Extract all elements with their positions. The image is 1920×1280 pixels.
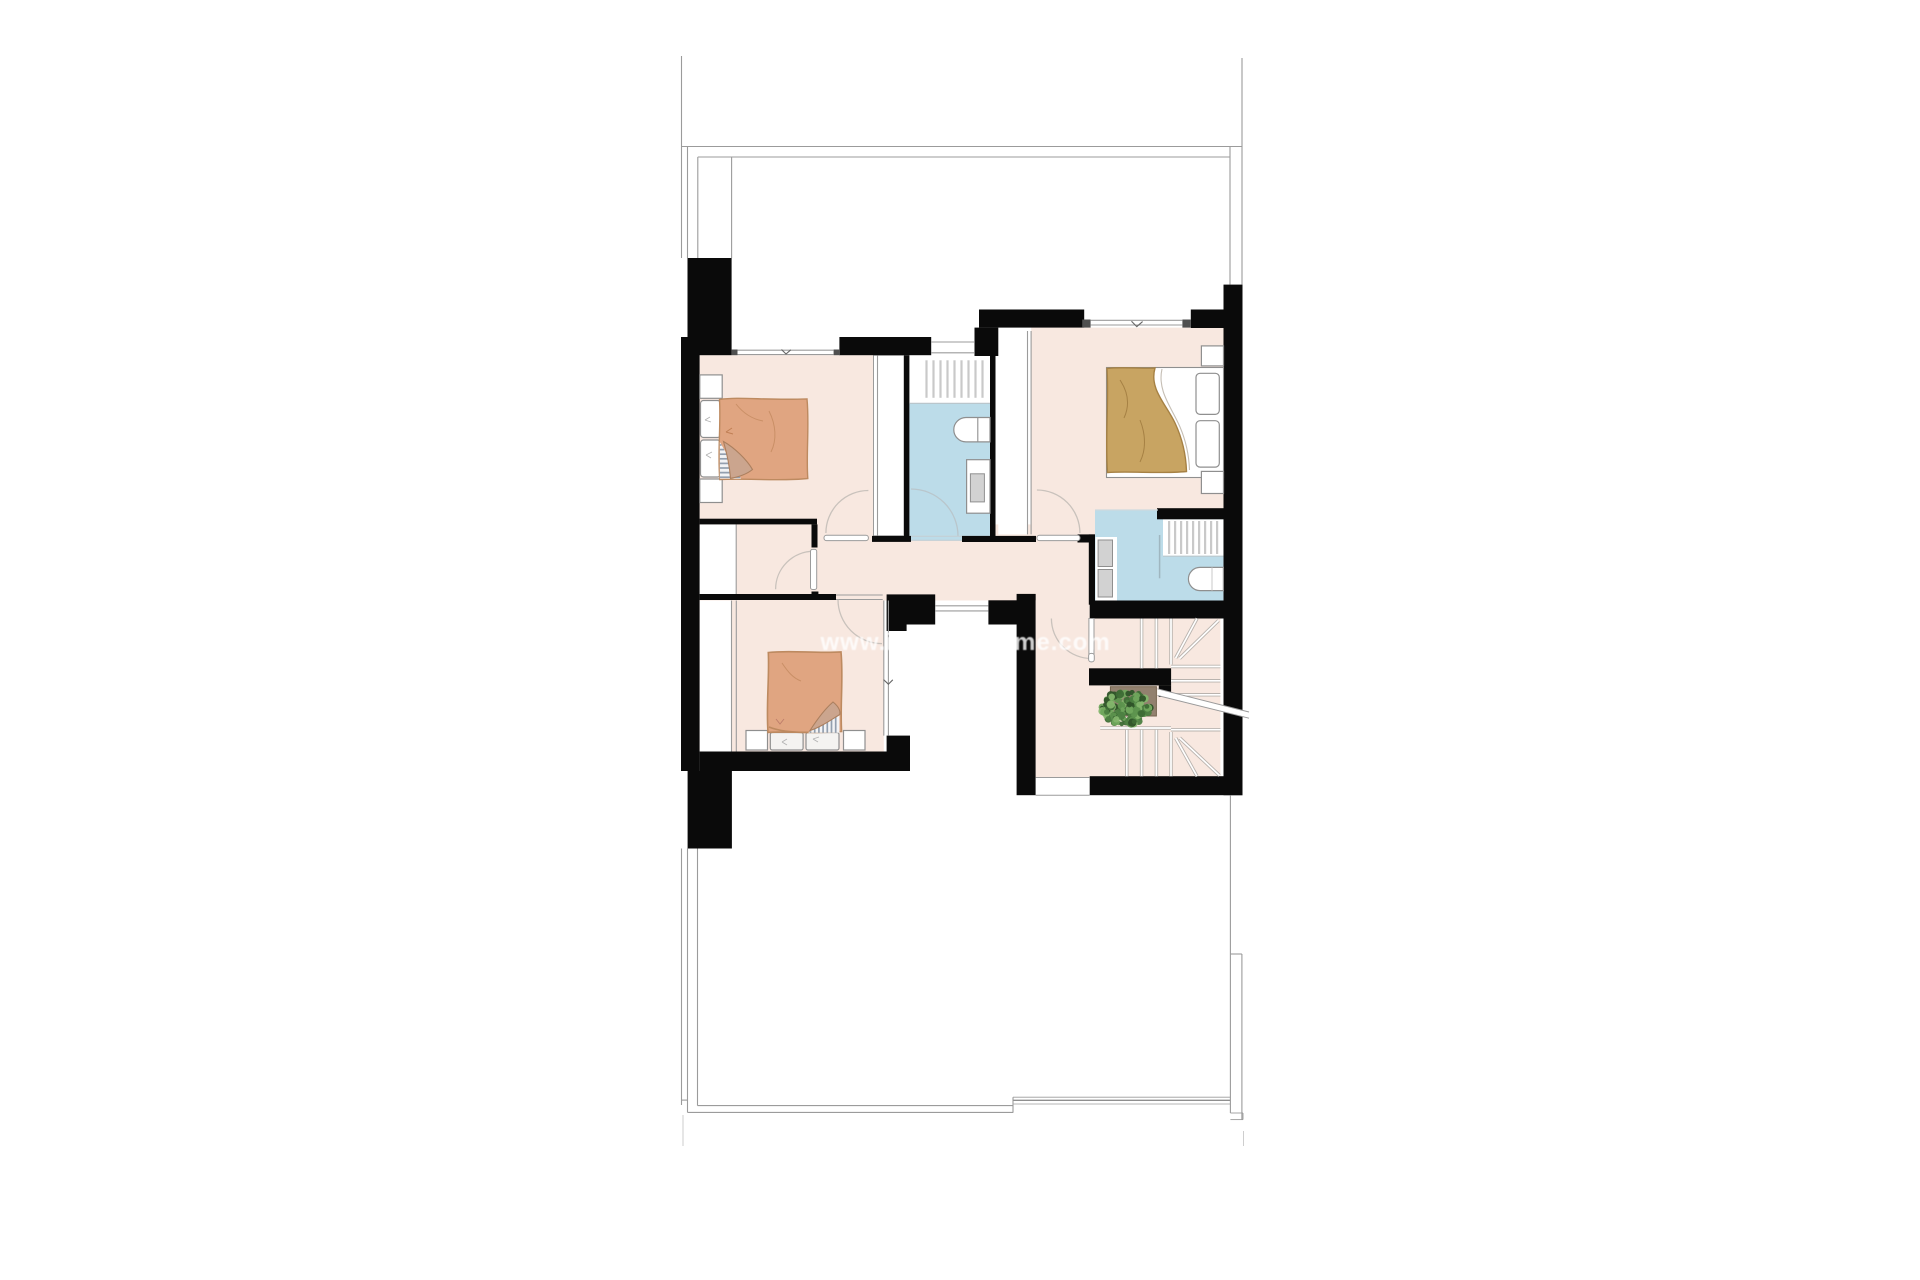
svg-text:www.i: www.i	[820, 629, 894, 656]
svg-text:me.com: me.com	[1014, 629, 1111, 656]
